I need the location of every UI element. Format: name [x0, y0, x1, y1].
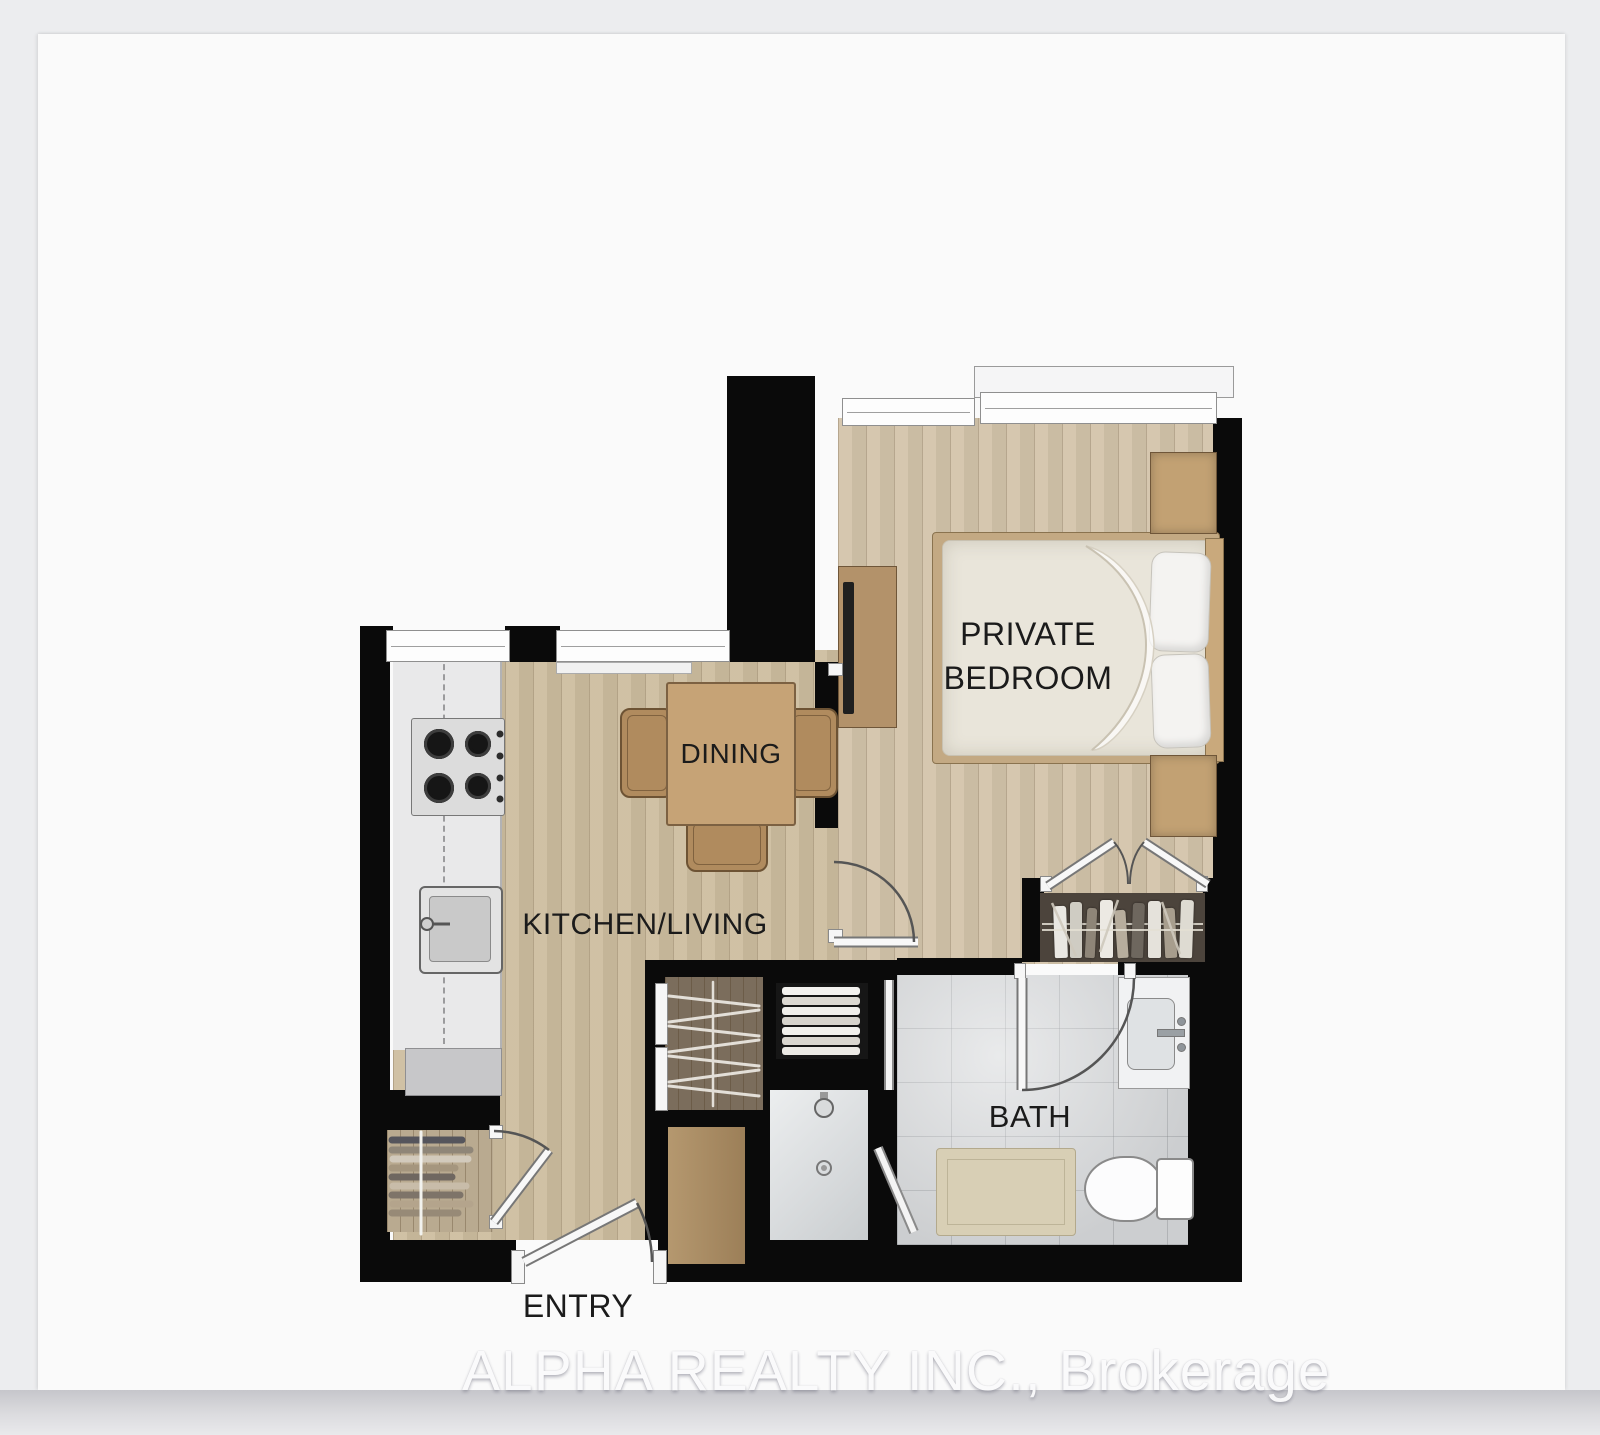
bedroom-door-jamb-top: [828, 663, 843, 676]
wall-right-lower: [1188, 958, 1242, 1282]
brokerage-watermark: ALPHA REALTY INC., Brokerage: [462, 1338, 1331, 1404]
faucet-knob: [1177, 1017, 1186, 1026]
towel-stack-icon: [782, 1037, 860, 1045]
wall-kitchen-top-mid: [505, 626, 560, 662]
wall-left: [360, 648, 390, 1282]
book-spine: [1179, 900, 1194, 958]
kitchen-base-cabinet: [405, 1048, 502, 1096]
linen-shelf: [776, 983, 868, 1059]
faucet-knob: [1177, 1043, 1186, 1052]
towel-stack-icon: [782, 987, 860, 995]
entry-door-jamb-left: [511, 1250, 525, 1284]
towel-stack-icon: [782, 1017, 860, 1025]
entry-door-jamb-right: [653, 1250, 667, 1284]
book-spine: [1163, 908, 1178, 959]
book-spine: [1070, 902, 1082, 958]
wardrobe-sliding-door: [655, 983, 668, 1045]
stove-icon: [411, 718, 505, 816]
bath-door-jamb-left: [1014, 963, 1026, 979]
towel-stack-icon: [782, 1007, 860, 1015]
bath-mat-icon: [936, 1148, 1076, 1236]
toilet-tank: [1156, 1158, 1194, 1220]
stove-burner: [465, 773, 491, 799]
wall-center-column: [727, 376, 815, 662]
bath-door-jamb-right: [1124, 963, 1136, 979]
toilet-icon: [1084, 1156, 1164, 1222]
towel-stack-icon: [782, 997, 860, 1005]
closet-door-jamb-bottom: [489, 1215, 503, 1229]
window-icon: [556, 630, 730, 662]
book-spine: [1131, 903, 1145, 958]
window-icon: [842, 398, 975, 426]
kitchen-sink-icon: [419, 886, 503, 974]
book-spine: [1085, 908, 1098, 958]
entry-closet: [387, 1130, 493, 1232]
shower-icon: [770, 1090, 868, 1240]
french-door-jamb-right: [1196, 876, 1208, 892]
stove-burner: [424, 729, 454, 759]
bedroom-door-jamb-bottom: [828, 929, 843, 943]
stove-burner: [424, 773, 454, 803]
closet-door-jamb-top: [489, 1125, 503, 1139]
faucet-icon: [1157, 1029, 1185, 1037]
french-door-jamb-left: [1040, 876, 1052, 892]
bath-label: BATH: [960, 1100, 1100, 1134]
book-spine: [1114, 910, 1128, 959]
bathroom-vanity: [1118, 977, 1190, 1089]
book-spine: [1053, 906, 1068, 958]
entry-label: ENTRY: [508, 1288, 648, 1324]
window-icon: [386, 630, 510, 662]
kitchen-living-label: KITCHEN/LIVING: [500, 908, 790, 942]
kitchen-counter: [393, 648, 502, 1050]
towel-stack-icon: [782, 1047, 860, 1055]
dining-label: DINING: [681, 739, 782, 769]
nightstand-icon: [1150, 755, 1217, 837]
bedroom-label: PRIVATE BEDROOM: [888, 612, 1168, 700]
entry-bench-cabinet: [668, 1127, 745, 1264]
tv-icon: [843, 582, 854, 714]
window-icon: [980, 392, 1217, 424]
book-spine: [1100, 900, 1113, 958]
entry-opening: [516, 1240, 658, 1282]
wardrobe-closet: [665, 977, 763, 1110]
bath-mat-inner: [947, 1159, 1065, 1225]
nightstand-icon: [1150, 452, 1217, 534]
bookshelf-icon: [1040, 893, 1205, 962]
wall-kitchen-bottom-band: [387, 1090, 500, 1132]
dining-table-icon: DINING: [666, 682, 796, 826]
sink-basin: [429, 896, 491, 962]
stove-burner: [465, 731, 491, 757]
window-sill: [556, 662, 692, 674]
book-spine: [1148, 901, 1161, 958]
towel-stack-icon: [782, 1027, 860, 1035]
wardrobe-sliding-door: [655, 1047, 668, 1111]
floor-plan-page: { "watermark": { "text": "ALPHA REALTY I…: [0, 0, 1600, 1435]
